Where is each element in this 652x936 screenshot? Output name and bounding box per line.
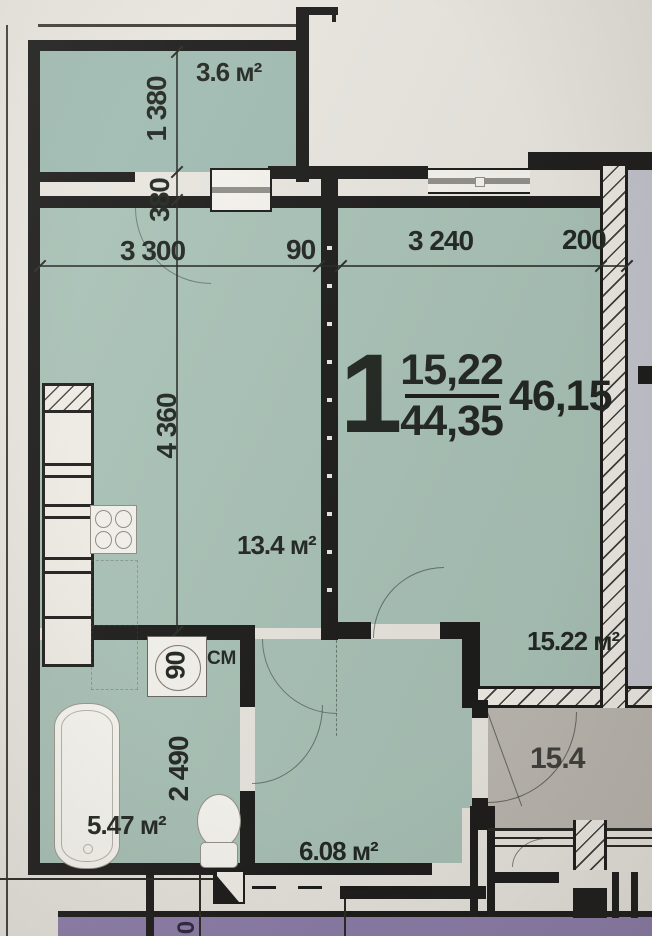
bathtub-drain-icon [83,844,93,854]
apartment-number: 1 [340,348,396,440]
bathroom-area-label: 5.47 м² [87,810,166,841]
wall [472,700,488,718]
ventilation-shaft [42,383,94,667]
hallway-area-label: 6.08 м² [299,836,378,867]
party-wall-hatched [573,820,607,870]
wall [472,798,488,830]
dim-balcony-width: 1 380 [141,69,173,149]
kitchen-counter-outline [91,560,138,690]
wall [612,872,619,918]
adjacent-area-label: 15.4 [530,742,584,776]
dim-kitchen-depth: 4 360 [151,386,183,466]
burner-icon [95,531,112,549]
stove-icon [90,505,137,554]
wall [240,791,255,865]
wall [487,806,495,917]
wall [495,872,559,883]
dim-pier: 90 [286,234,315,266]
wall [6,25,8,936]
wall [631,872,638,918]
living-area-label: 15.22 м² [527,626,619,657]
entry-door-leaf-icon [217,876,239,902]
balcony-glazing-line [38,24,298,27]
wall [28,172,135,182]
wall [146,863,154,936]
apartment-living-area: 15,22 [400,348,503,393]
wall [0,878,214,880]
dimension-line-vertical [176,52,178,632]
door-arc-corridor [512,838,547,867]
wall [28,196,212,208]
vent-duct-hatched [45,386,91,410]
washing-machine-label: СМ [207,648,236,670]
room-fill-side-neighbor [628,170,652,708]
window-sill-bar [212,187,270,193]
dim-kitchen-width: 3 300 [120,235,185,267]
wall [296,10,309,182]
wall [440,622,480,639]
burner-icon [95,510,112,528]
living-room-window [428,168,530,194]
dim-balcony-wall: 380 [144,170,176,230]
balcony-area-label: 3.6 м² [196,57,261,88]
wall [338,196,604,208]
wall [638,366,652,384]
apartment-info: 1 15,22 44,35 46,15 [340,348,612,443]
room-fill-hallway [255,639,462,863]
toilet [197,794,241,848]
apartment-overall-area: 46,15 [509,372,612,421]
wall [268,166,428,179]
burner-icon [115,531,132,549]
wall [28,40,40,182]
wall [321,622,371,639]
kitchen-area-label: 13.4 м² [237,530,316,561]
burner-icon [115,510,132,528]
dim-living-width: 3 240 [408,225,473,257]
partition-kitchen-living [321,166,338,640]
wall [573,888,607,918]
entry-door [213,870,245,904]
wall [462,639,480,691]
wall [240,625,255,707]
apartment-total-area: 44,35 [400,399,503,444]
toilet-tank [200,842,238,868]
balcony-window-unit [210,168,272,212]
floor-plan-canvas: 1 380 380 3 300 90 3 240 200 4 360 2 490… [0,0,652,936]
window-center-mark [475,177,485,187]
wall [28,40,308,51]
wall [28,182,40,872]
threshold-dashed-line [252,886,424,889]
dim-corridor-partial: 0 [173,913,201,936]
room-fill-hallway-strip [462,708,472,808]
dimension-extension-line [344,899,346,936]
dim-bathroom-depth: 2 490 [163,729,195,809]
bathtub [54,703,120,869]
wall [488,828,652,831]
wall [528,152,652,170]
dim-niche-width: 90 [161,641,192,691]
dim-outer-wall: 200 [562,224,606,256]
wall [332,7,336,22]
